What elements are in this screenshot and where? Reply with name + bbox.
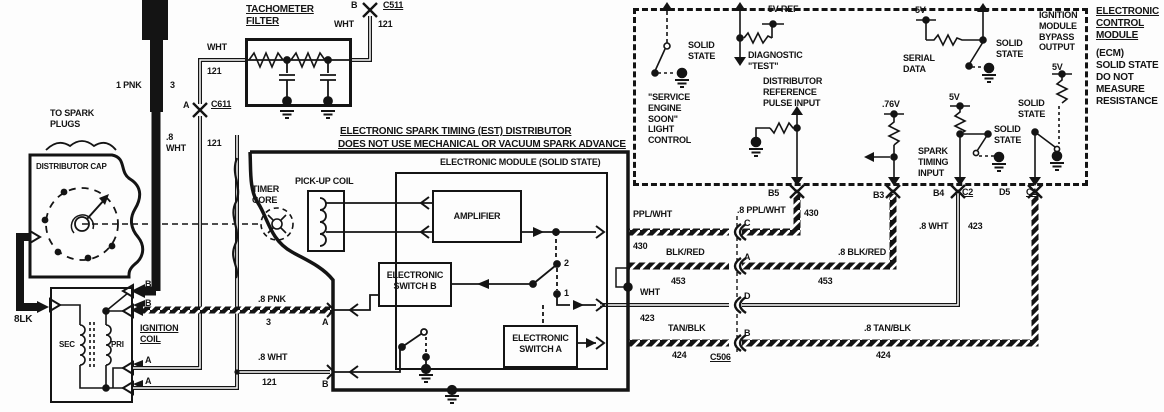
- pri-label: PRI: [111, 340, 124, 350]
- serial-5v-label: 5V: [915, 5, 926, 16]
- conn-b-label: B: [744, 328, 750, 339]
- switch-pos-2: 2: [564, 258, 569, 269]
- ecm-conn-c1: C1: [1026, 187, 1037, 198]
- ppl8-ckt: 430: [804, 208, 818, 219]
- ecm-subtitle: (ECM) SOLID STATE DO NOT MEASURE RESISTA…: [1096, 48, 1158, 108]
- 5v-ref-label: 5V REF: [768, 4, 798, 15]
- vert-121-label: 121: [207, 138, 221, 149]
- tach-filter-box: [245, 38, 352, 107]
- conn-a-label: A: [744, 252, 750, 263]
- ecm-term-d5: D5: [999, 187, 1010, 198]
- c511-connector: [363, 3, 377, 17]
- pnk8-ckt: 3: [266, 317, 271, 328]
- timer-core-label: TIMER CORE: [252, 184, 279, 206]
- wht-wire-ckt: 423: [640, 313, 654, 324]
- ecm-term-b5: B5: [768, 188, 779, 199]
- coil-term-b1: B: [145, 279, 151, 290]
- spark-plug-cable: [131, 0, 168, 298]
- blkred8-label: .8 BLK/RED: [838, 247, 886, 258]
- c511-wht: WHT: [334, 19, 354, 30]
- c611-connector: [193, 103, 207, 117]
- ecm-title: ELECTRONIC CONTROL MODULE: [1096, 6, 1159, 42]
- serial-solid-state: SOLID STATE: [996, 38, 1023, 60]
- amplifier-label: AMPLIFIER: [432, 211, 522, 222]
- ecm-term-b3: B3: [873, 190, 884, 201]
- conn-d-label: D: [744, 291, 750, 302]
- blkred-ckt: 453: [671, 276, 685, 287]
- c506-name: C506: [710, 352, 731, 363]
- c511-terminal-b: B: [351, 0, 357, 11]
- wht-label: WHT: [207, 42, 227, 53]
- serial-data-label: SERIAL DATA: [903, 53, 935, 75]
- conn-c-label: C: [744, 218, 750, 229]
- to-spark-plugs: TO SPARK PLUGS: [50, 108, 94, 130]
- coil-term-a1: A: [145, 355, 151, 366]
- est-title-line2: DOES NOT USE MECHANICAL OR VACUUM SPARK …: [338, 139, 626, 151]
- wht8-right-ckt: 423: [968, 221, 982, 232]
- blkred-label: BLK/RED: [666, 247, 705, 258]
- c511-121: 121: [378, 19, 392, 30]
- coil-term-b2: B: [145, 298, 151, 309]
- switch-b-label: ELECTRONIC SWITCH B: [378, 270, 452, 292]
- bypass-5v-label: 5V: [1052, 62, 1063, 73]
- vert-wht-label: .8 WHT: [166, 132, 186, 154]
- blk-secondary-wire: [20, 231, 49, 313]
- tanblk8-ckt: 424: [876, 350, 890, 361]
- pnk8-label: .8 PNK: [258, 294, 286, 305]
- spark-timing-label: SPARK TIMING INPUT: [918, 146, 948, 178]
- wht-wire-label: WHT: [640, 287, 660, 298]
- ppl8-label: .8 PPL/WHT: [737, 205, 786, 216]
- module-term-a: A: [322, 317, 328, 328]
- wht8-ckt: 121: [262, 377, 276, 388]
- wht8-label: .8 WHT: [258, 352, 287, 363]
- spark-5v-label: 5V: [949, 92, 960, 103]
- pnk-gauge: 3: [170, 80, 175, 91]
- module-header: ELECTRONIC MODULE (SOLID STATE): [440, 157, 600, 168]
- c511-name: C511: [383, 0, 403, 11]
- distributor-cap-label: DISTRIBUTOR CAP: [36, 162, 107, 172]
- pickup-coil-label: PICK-UP COIL: [295, 176, 353, 187]
- bypass-solid-state: SOLID STATE: [1018, 98, 1045, 120]
- c611-terminal-a: A: [183, 100, 189, 111]
- ckt-121-label: 121: [207, 66, 221, 77]
- ecm-conn-c2: C2: [962, 187, 973, 198]
- c611-name: C611: [211, 99, 231, 110]
- coil-term-a2: A: [145, 376, 151, 387]
- tanblk-label: TAN/BLK: [668, 323, 705, 334]
- sec-label: SEC: [59, 340, 75, 350]
- ignition-coil-label: IGNITION COIL: [140, 323, 178, 345]
- ppl-wht-label: PPL/WHT: [633, 209, 672, 220]
- ppl-ckt: 430: [633, 241, 647, 252]
- blk-label: 8LK: [14, 314, 32, 326]
- wht8-right-label: .8 WHT: [919, 221, 948, 232]
- diagnostic-test-label: DIAGNOSTIC "TEST": [748, 50, 803, 72]
- module-term-b: B: [322, 379, 328, 390]
- ses-solid-state: SOLID STATE: [688, 40, 715, 62]
- tanblk-ckt: 424: [672, 350, 686, 361]
- switch-pos-1: 1: [564, 288, 569, 299]
- switch-a-label: ELECTRONIC SWITCH A: [503, 333, 578, 355]
- timer-core: [261, 208, 293, 240]
- pickup-coil-box: [307, 190, 345, 252]
- dist-ref-pulse-label: DISTRIBUTOR REFERENCE PULSE INPUT: [763, 76, 822, 108]
- tanblk8-label: .8 TAN/BLK: [864, 323, 911, 334]
- wiring-diagram-page: ELECTRONIC SPARK TIMING (EST) DISTRIBUTO…: [0, 0, 1164, 412]
- pnk-label: 1 PNK: [116, 80, 142, 91]
- est-title-line1: ELECTRONIC SPARK TIMING (EST) DISTRIBUTO…: [340, 126, 571, 138]
- spark-solid-state: SOLID STATE: [994, 124, 1021, 146]
- ign-bypass-label: IGNITION MODULE BYPASS OUTPUT: [1039, 10, 1077, 53]
- service-engine-soon-label: "SERVICE ENGINE SOON" LIGHT CONTROL: [648, 92, 691, 146]
- blkred8-ckt: 453: [818, 276, 832, 287]
- ecm-box: [633, 8, 1088, 186]
- ecm-term-b4: B4: [933, 188, 944, 199]
- tach-filter-title: TACHOMETER FILTER: [246, 4, 314, 28]
- v76-label: .76V: [882, 99, 900, 110]
